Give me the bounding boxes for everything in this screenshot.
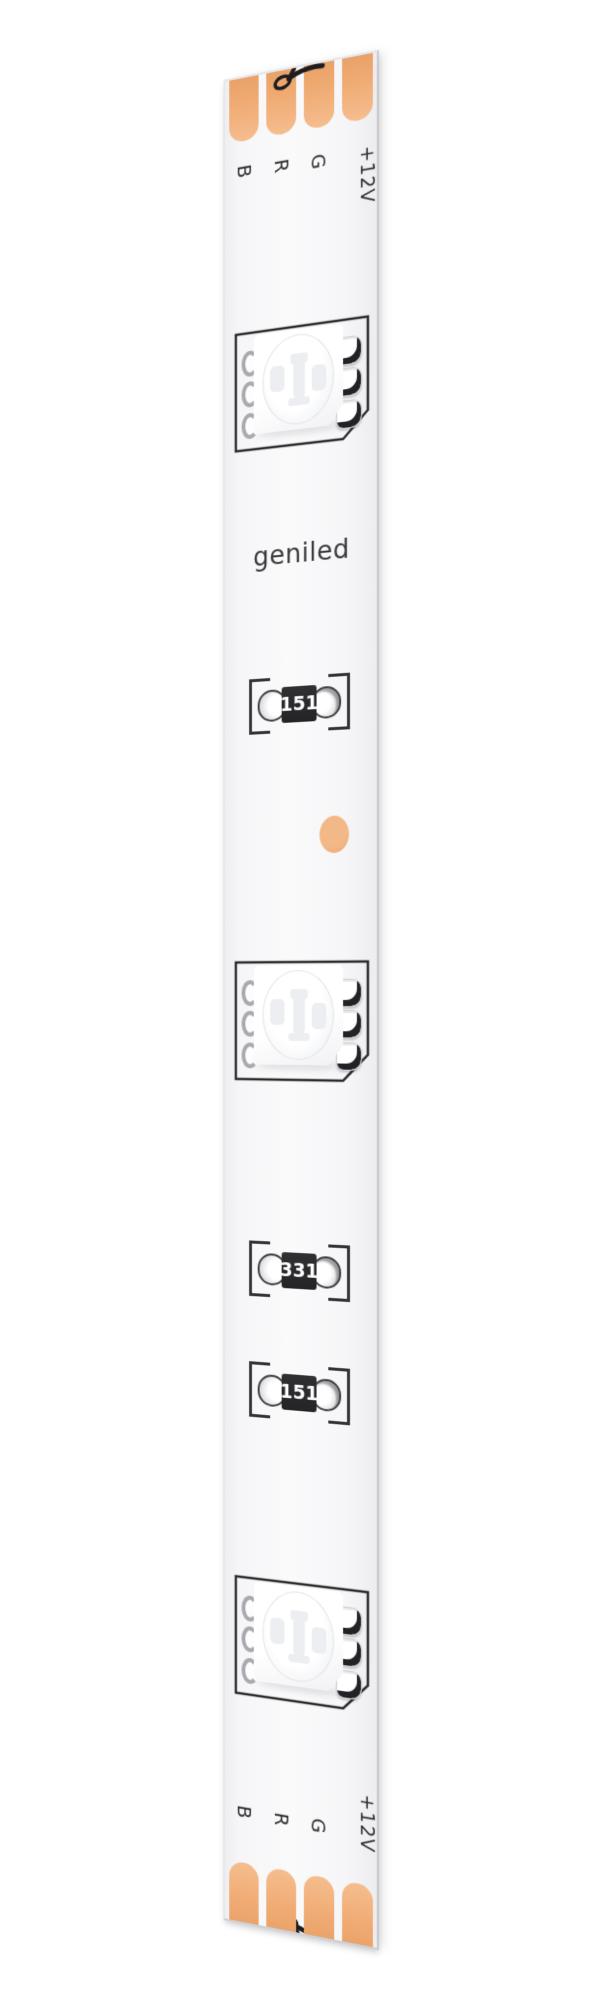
- channel-label-12v: +12V: [356, 1793, 378, 1855]
- resistor: 151: [249, 1361, 350, 1425]
- brand-logo: geniled: [225, 531, 379, 575]
- led-module: [234, 1574, 370, 1714]
- channel-label-g: G: [307, 1816, 329, 1835]
- copper-pad: [229, 1860, 258, 1929]
- resistor: 331: [249, 1240, 350, 1302]
- copper-pad: [342, 1881, 373, 1951]
- resistor: 151: [249, 673, 350, 735]
- channel-label-g: G: [307, 152, 329, 172]
- copper-pad: [229, 75, 258, 144]
- led-package: [254, 965, 343, 1066]
- resistor-code: 331: [280, 1259, 318, 1283]
- led-lens: [262, 1587, 334, 1686]
- resistor-body: 151: [282, 1374, 317, 1413]
- led-package: [254, 1581, 343, 1693]
- copper-pad: [342, 53, 373, 124]
- channel-label-b: B: [233, 163, 254, 181]
- channel-label-12v: +12V: [356, 144, 378, 206]
- resistor-body: 151: [282, 685, 317, 723]
- copper-pad: [266, 1867, 296, 1936]
- led-strip: B R G +12V: [224, 50, 379, 1951]
- solder-dot: [319, 815, 349, 853]
- led-package: [254, 323, 343, 434]
- resistor-code: 151: [280, 692, 318, 716]
- channel-label-r: R: [270, 157, 291, 175]
- led-lens: [262, 970, 334, 1061]
- led-module: [234, 314, 370, 453]
- copper-pad: [304, 1874, 334, 1944]
- resistor-body: 331: [282, 1252, 317, 1290]
- led-lens: [262, 329, 334, 428]
- product-photo: B R G +12V: [0, 0, 600, 2000]
- channel-label-b: B: [233, 1804, 254, 1821]
- led-module: [234, 959, 370, 1083]
- channel-label-r: R: [270, 1811, 291, 1829]
- resistor-code: 151: [280, 1380, 318, 1405]
